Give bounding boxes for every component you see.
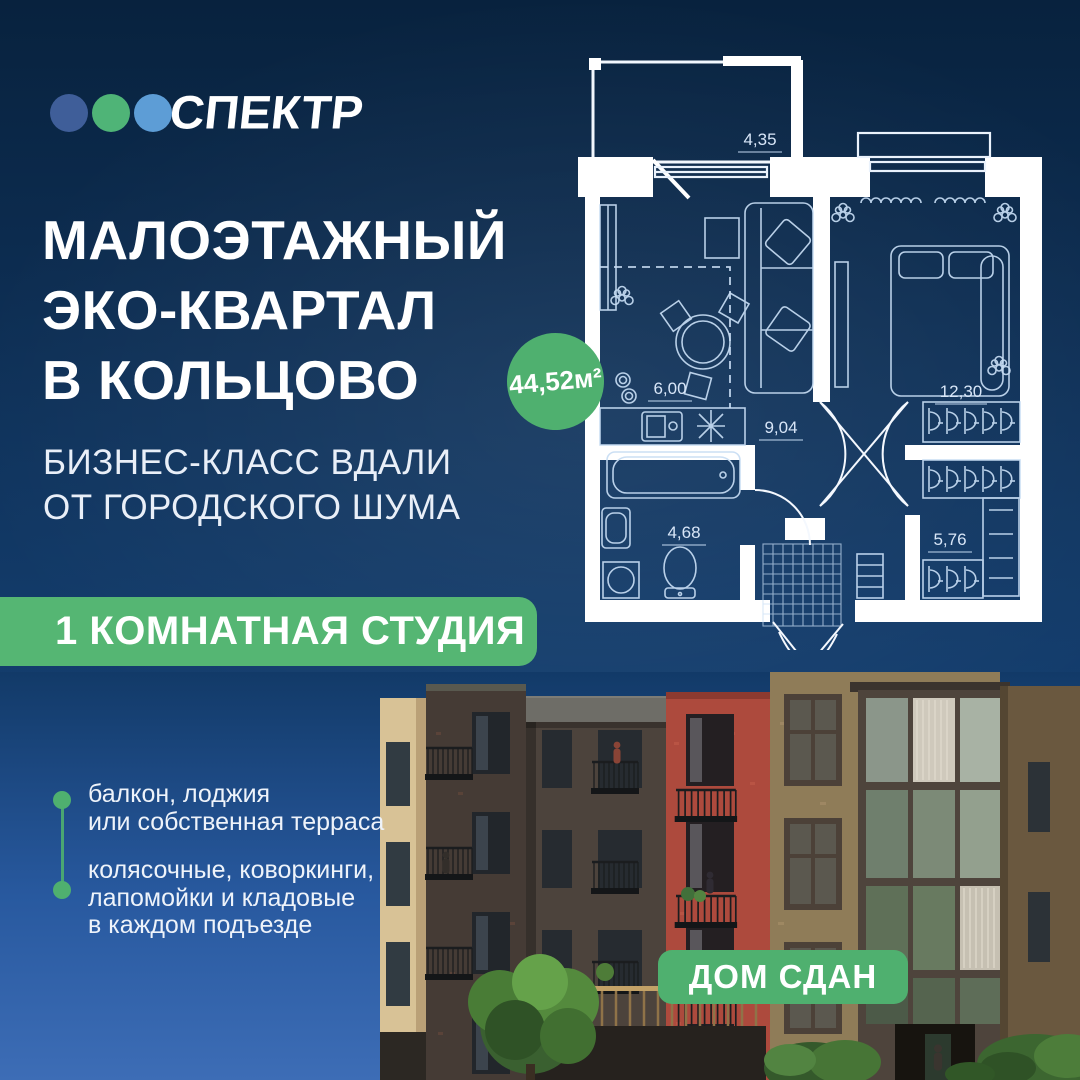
person-silhouette: [443, 852, 450, 874]
subtitle: БИЗНЕС-КЛАСС ВДАЛИ ОТ ГОРОДСКОГО ШУМА: [43, 440, 461, 530]
glass-curtain-wall: [850, 682, 1010, 1080]
logo-dot-lightblue-icon: [134, 94, 172, 132]
apartment-type-label: 1 КОМНАТНАЯ СТУДИЯ: [55, 609, 525, 654]
logo-dot-green-icon: [92, 94, 130, 132]
red-brick-tower: [666, 692, 770, 1080]
brand-name: СПЕКТР: [167, 87, 366, 141]
wardrobe-fixtures: [923, 460, 1020, 598]
feature-line: или собственная терраса: [88, 809, 384, 837]
living-furniture: [661, 203, 813, 399]
person-silhouette: [707, 872, 714, 894]
ad-banner: СПЕКТР МАЛОЭТАЖНЫЙ ЭКО-КВАРТАЛ В КОЛЬЦОВ…: [0, 0, 1080, 1080]
person-silhouette: [614, 742, 621, 764]
headline: МАЛОЭТАЖНЫЙ ЭКО-КВАРТАЛ В КОЛЬЦОВО: [42, 205, 507, 415]
apartment-type-badge: 1 КОМНАТНАЯ СТУДИЯ: [0, 597, 537, 666]
bedroom-furniture: [835, 198, 1020, 442]
status-badge: ДОМ СДАН: [658, 950, 908, 1004]
feature-item-balcony: балкон, лоджия или собственная терраса: [88, 781, 384, 836]
logo-dot-blue-icon: [50, 94, 88, 132]
tan-tower: [770, 672, 1080, 1080]
feature-line: лапомойки и кладовые: [88, 885, 374, 913]
total-area-value: 44,52м²: [508, 362, 603, 401]
feature-line: балкон, лоджия: [88, 781, 384, 809]
beige-tower: [380, 698, 426, 1080]
balcony-area-label: 4,35: [743, 130, 776, 149]
subtitle-line1: БИЗНЕС-КЛАСС ВДАЛИ: [43, 440, 461, 485]
headline-line3: В КОЛЬЦОВО: [42, 345, 507, 415]
headline-line1: МАЛОЭТАЖНЫЙ: [42, 205, 507, 275]
headline-line2: ЭКО-КВАРТАЛ: [42, 275, 507, 345]
bathroom-area-label: 4,68: [667, 523, 700, 542]
building-illustration: [380, 672, 1080, 1080]
wardrobe-area-label: 5,76: [933, 530, 966, 549]
kitchen-area-label: 6,00: [653, 379, 686, 398]
subtitle-line2: ОТ ГОРОДСКОГО ШУМА: [43, 485, 461, 530]
feature-item-amenities: колясочные, коворкинги, лапомойки и клад…: [88, 857, 374, 940]
feature-line: в каждом подъезде: [88, 912, 374, 940]
status-label: ДОМ СДАН: [689, 958, 877, 996]
feature-connector-line: [61, 806, 65, 886]
hall-area-label: 9,04: [764, 418, 797, 437]
floor-plan: 4,35 6,00 9,04 12,30 4,68 5,76: [575, 50, 1045, 650]
feature-line: колясочные, коворкинги,: [88, 857, 374, 885]
bedroom-area-label: 12,30: [940, 382, 983, 401]
